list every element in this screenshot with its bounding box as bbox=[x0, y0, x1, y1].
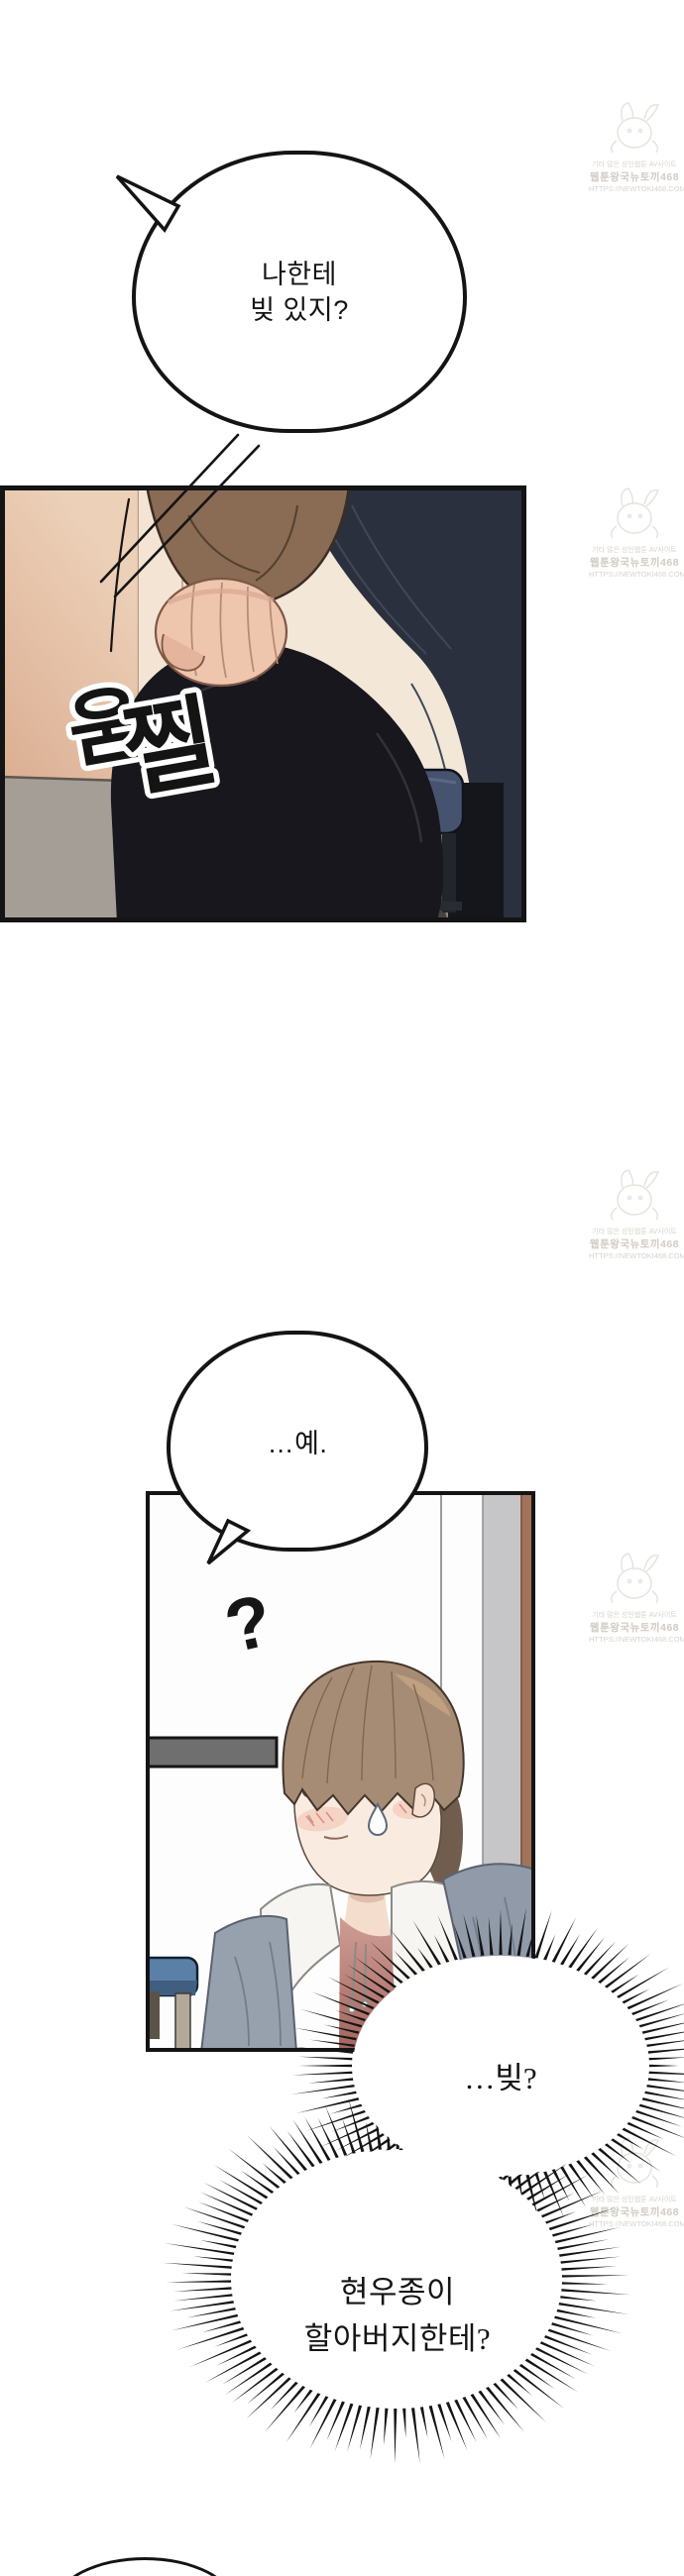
watermark-line-3: HTTPS://NEWTOKI468.COM bbox=[589, 1251, 680, 1260]
webtoon-page: 기타 많은 성인웹툰 AV사이트 웹툰왕국뉴토끼468 HTTPS://NEWT… bbox=[0, 0, 684, 2576]
speech-text-debt: …빚? bbox=[416, 2053, 585, 2097]
hair-front bbox=[284, 1662, 464, 1814]
speech-text-grandfather: 현우종이 할아버지한테? bbox=[268, 2269, 527, 2362]
mascot-watermark-icon bbox=[589, 97, 680, 155]
burst-bubbles bbox=[139, 1853, 684, 2487]
watermark-line-2: 웹툰왕국뉴토끼468 bbox=[589, 1620, 680, 1635]
mascot-watermark-icon bbox=[589, 1164, 680, 1222]
watermark-line-1: 기타 많은 성인웹툰 AV사이트 bbox=[589, 160, 680, 169]
motion-lines bbox=[84, 421, 322, 664]
watermark-line-1: 기타 많은 성인웹툰 AV사이트 bbox=[589, 1227, 680, 1236]
site-watermark: 기타 많은 성인웹툰 AV사이트 웹툰왕국뉴토끼468 HTTPS://NEWT… bbox=[589, 1164, 680, 1260]
chair-bar bbox=[146, 1738, 277, 1767]
watermark-line-2: 웹툰왕국뉴토끼468 bbox=[589, 555, 680, 570]
speech-bubble-tail bbox=[193, 1506, 273, 1575]
watermark-line-1: 기타 많은 성인웹툰 AV사이트 bbox=[589, 1610, 680, 1620]
site-watermark: 기타 많은 성인웹툰 AV사이트 웹툰왕국뉴토끼468 HTTPS://NEWT… bbox=[589, 1548, 680, 1644]
sfx-flinch-char-2: 찔 bbox=[115, 685, 224, 809]
mascot-watermark-icon bbox=[589, 1548, 680, 1605]
partial-bubble-bottom bbox=[55, 2557, 235, 2576]
site-watermark: 기타 많은 성인웹툰 AV사이트 웹툰왕국뉴토끼468 HTTPS://NEWT… bbox=[589, 97, 680, 193]
mascot-watermark-icon bbox=[589, 483, 680, 540]
watermark-line-3: HTTPS://NEWTOKI468.COM bbox=[589, 184, 680, 193]
watermark-line-2: 웹툰왕국뉴토끼468 bbox=[589, 169, 680, 184]
speech-text: …예. bbox=[268, 1422, 328, 1460]
watermark-line-1: 기타 많은 성인웹툰 AV사이트 bbox=[589, 545, 680, 555]
speech-text: 나한테 빚 있지? bbox=[250, 257, 349, 328]
site-watermark: 기타 많은 성인웹툰 AV사이트 웹툰왕국뉴토끼468 HTTPS://NEWT… bbox=[589, 483, 680, 579]
watermark-line-3: HTTPS://NEWTOKI468.COM bbox=[589, 1635, 680, 1644]
watermark-line-3: HTTPS://NEWTOKI468.COM bbox=[589, 570, 680, 579]
speech-bubble-tail bbox=[99, 159, 198, 238]
watermark-line-2: 웹툰왕국뉴토끼468 bbox=[589, 1236, 680, 1251]
